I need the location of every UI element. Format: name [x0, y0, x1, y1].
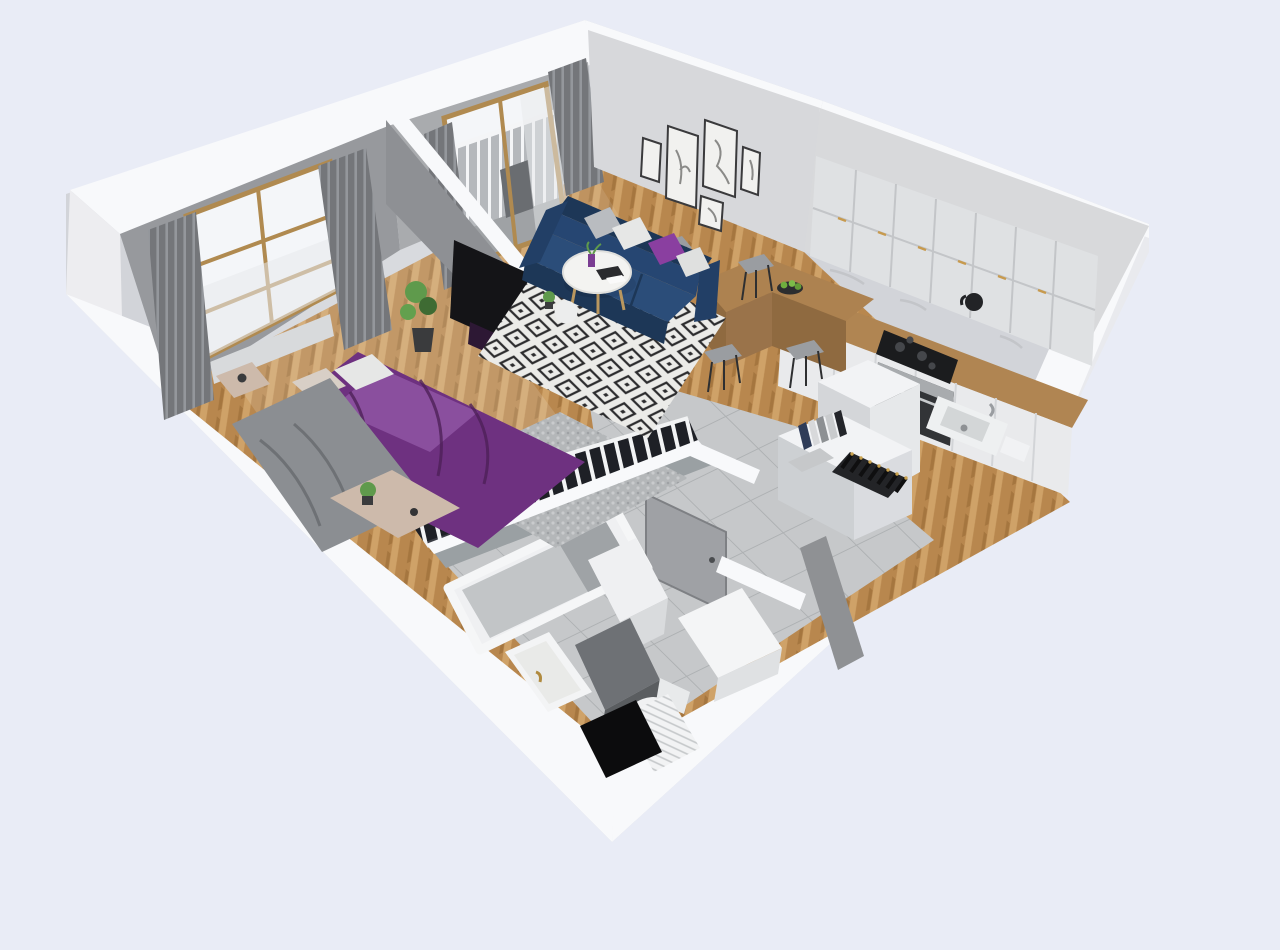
living-plant-leaves [543, 291, 555, 303]
bench-clock [410, 508, 418, 516]
art-frame-4 [741, 147, 760, 195]
door-handle [709, 557, 715, 563]
bench-plant [360, 482, 376, 498]
bench-plant-pot [362, 496, 373, 505]
fruit-1 [781, 282, 788, 289]
art-frame-5 [699, 196, 723, 231]
table-vase [588, 254, 595, 267]
art-frame-1 [641, 138, 661, 182]
plant-leaves-3 [400, 304, 416, 320]
burner-3 [906, 336, 913, 343]
living-plant-pot [545, 302, 553, 309]
sink-drain [961, 425, 968, 432]
floorplan-stage [0, 0, 1280, 950]
apartment-render [0, 0, 1280, 950]
burner-2 [917, 351, 927, 361]
fruit-2 [789, 280, 796, 287]
plant-leaves-2 [419, 297, 437, 315]
plant-pot [412, 328, 434, 352]
white-ottoman [555, 301, 578, 324]
fruit-3 [795, 283, 802, 290]
kettle [965, 293, 983, 311]
side-table-vase [238, 374, 247, 383]
burner-4 [928, 362, 935, 369]
burner-1 [895, 342, 905, 352]
